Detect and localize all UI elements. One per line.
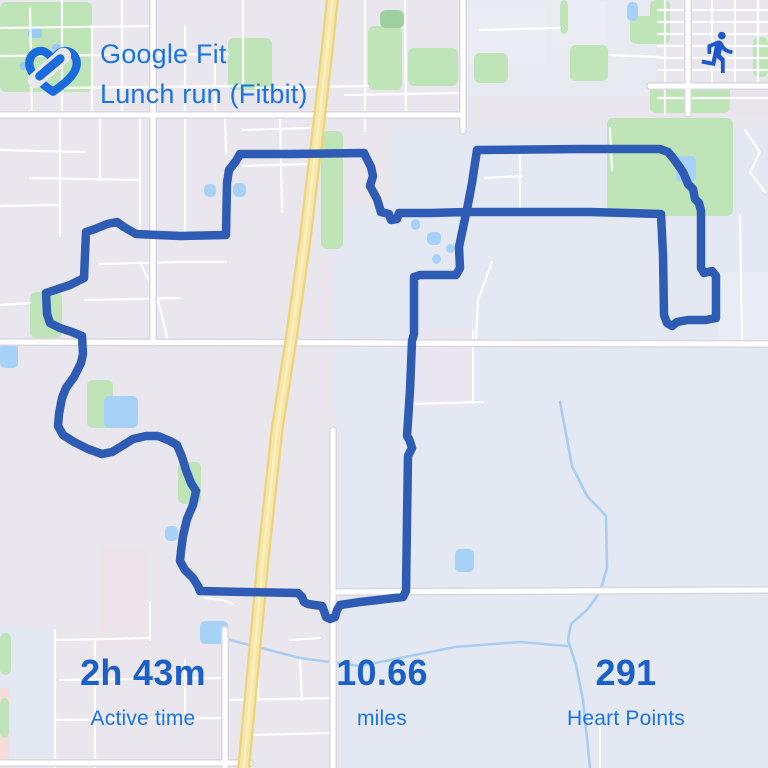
map-park xyxy=(607,118,733,216)
map-canvas[interactable] xyxy=(0,0,768,768)
map-pond xyxy=(233,183,246,197)
map-pond xyxy=(427,232,441,245)
map-pond xyxy=(165,526,178,541)
google-fit-heart-icon xyxy=(22,44,84,98)
app-title: Google Fit xyxy=(100,40,308,68)
map-park xyxy=(321,131,343,249)
map-street xyxy=(405,0,406,115)
header: Google Fit Lunch run (Fitbit) xyxy=(22,40,308,109)
map-pond xyxy=(104,396,138,428)
activity-title: Lunch run (Fitbit) xyxy=(100,80,308,108)
map-park xyxy=(560,0,568,34)
map-pond xyxy=(432,254,441,264)
map-park xyxy=(570,45,608,81)
map-zone xyxy=(718,272,768,342)
map-park xyxy=(474,53,508,83)
map-pond xyxy=(204,184,216,197)
map-road xyxy=(333,590,768,592)
map-zone xyxy=(333,205,768,768)
map-pond xyxy=(411,219,420,230)
map-pond xyxy=(455,549,474,572)
map-street xyxy=(225,115,226,154)
map-pond xyxy=(0,343,18,368)
map-street xyxy=(0,205,60,206)
map-pond xyxy=(446,244,455,253)
run-icon xyxy=(696,29,742,75)
map-pond xyxy=(627,2,638,21)
map-road xyxy=(0,342,768,344)
map-park xyxy=(408,48,458,86)
title-block: Google Fit Lunch run (Fitbit) xyxy=(100,40,308,109)
google-fit-activity-screen: Google Fit Lunch run (Fitbit) 2h 43m Act… xyxy=(0,0,768,768)
map-zone xyxy=(100,547,145,647)
map-park xyxy=(0,698,9,738)
map-park xyxy=(368,26,402,90)
map-park xyxy=(380,10,404,28)
map-park xyxy=(0,633,11,675)
